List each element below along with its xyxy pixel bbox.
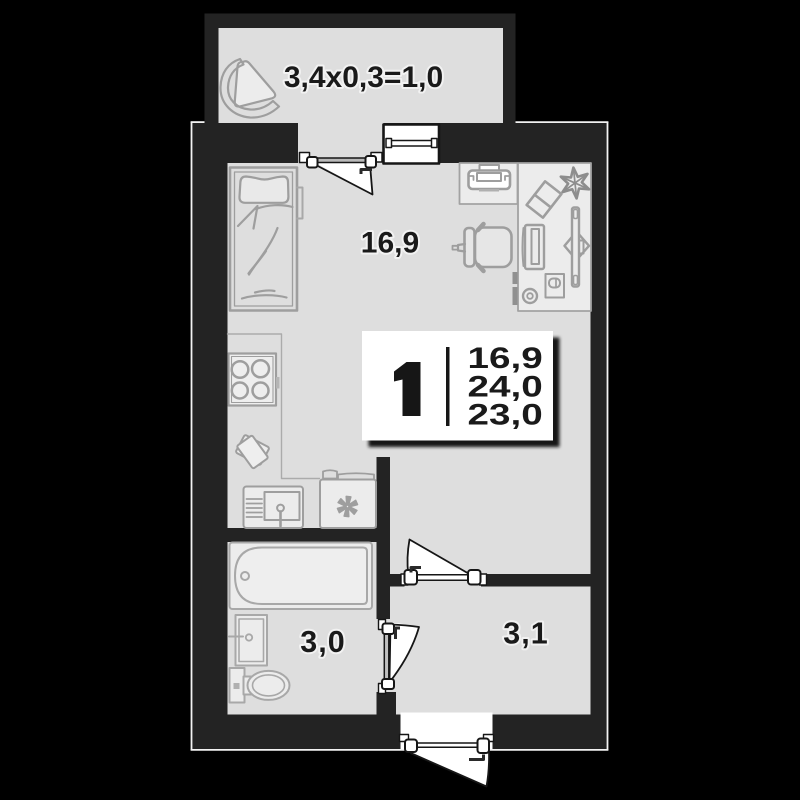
svg-text:3,1: 3,1 xyxy=(503,617,548,651)
svg-text:16,9: 16,9 xyxy=(361,227,419,260)
svg-text:3,0: 3,0 xyxy=(300,625,345,659)
svg-text:23,0: 23,0 xyxy=(468,399,543,432)
svg-text:3,4x0,3=1,0: 3,4x0,3=1,0 xyxy=(284,61,443,94)
